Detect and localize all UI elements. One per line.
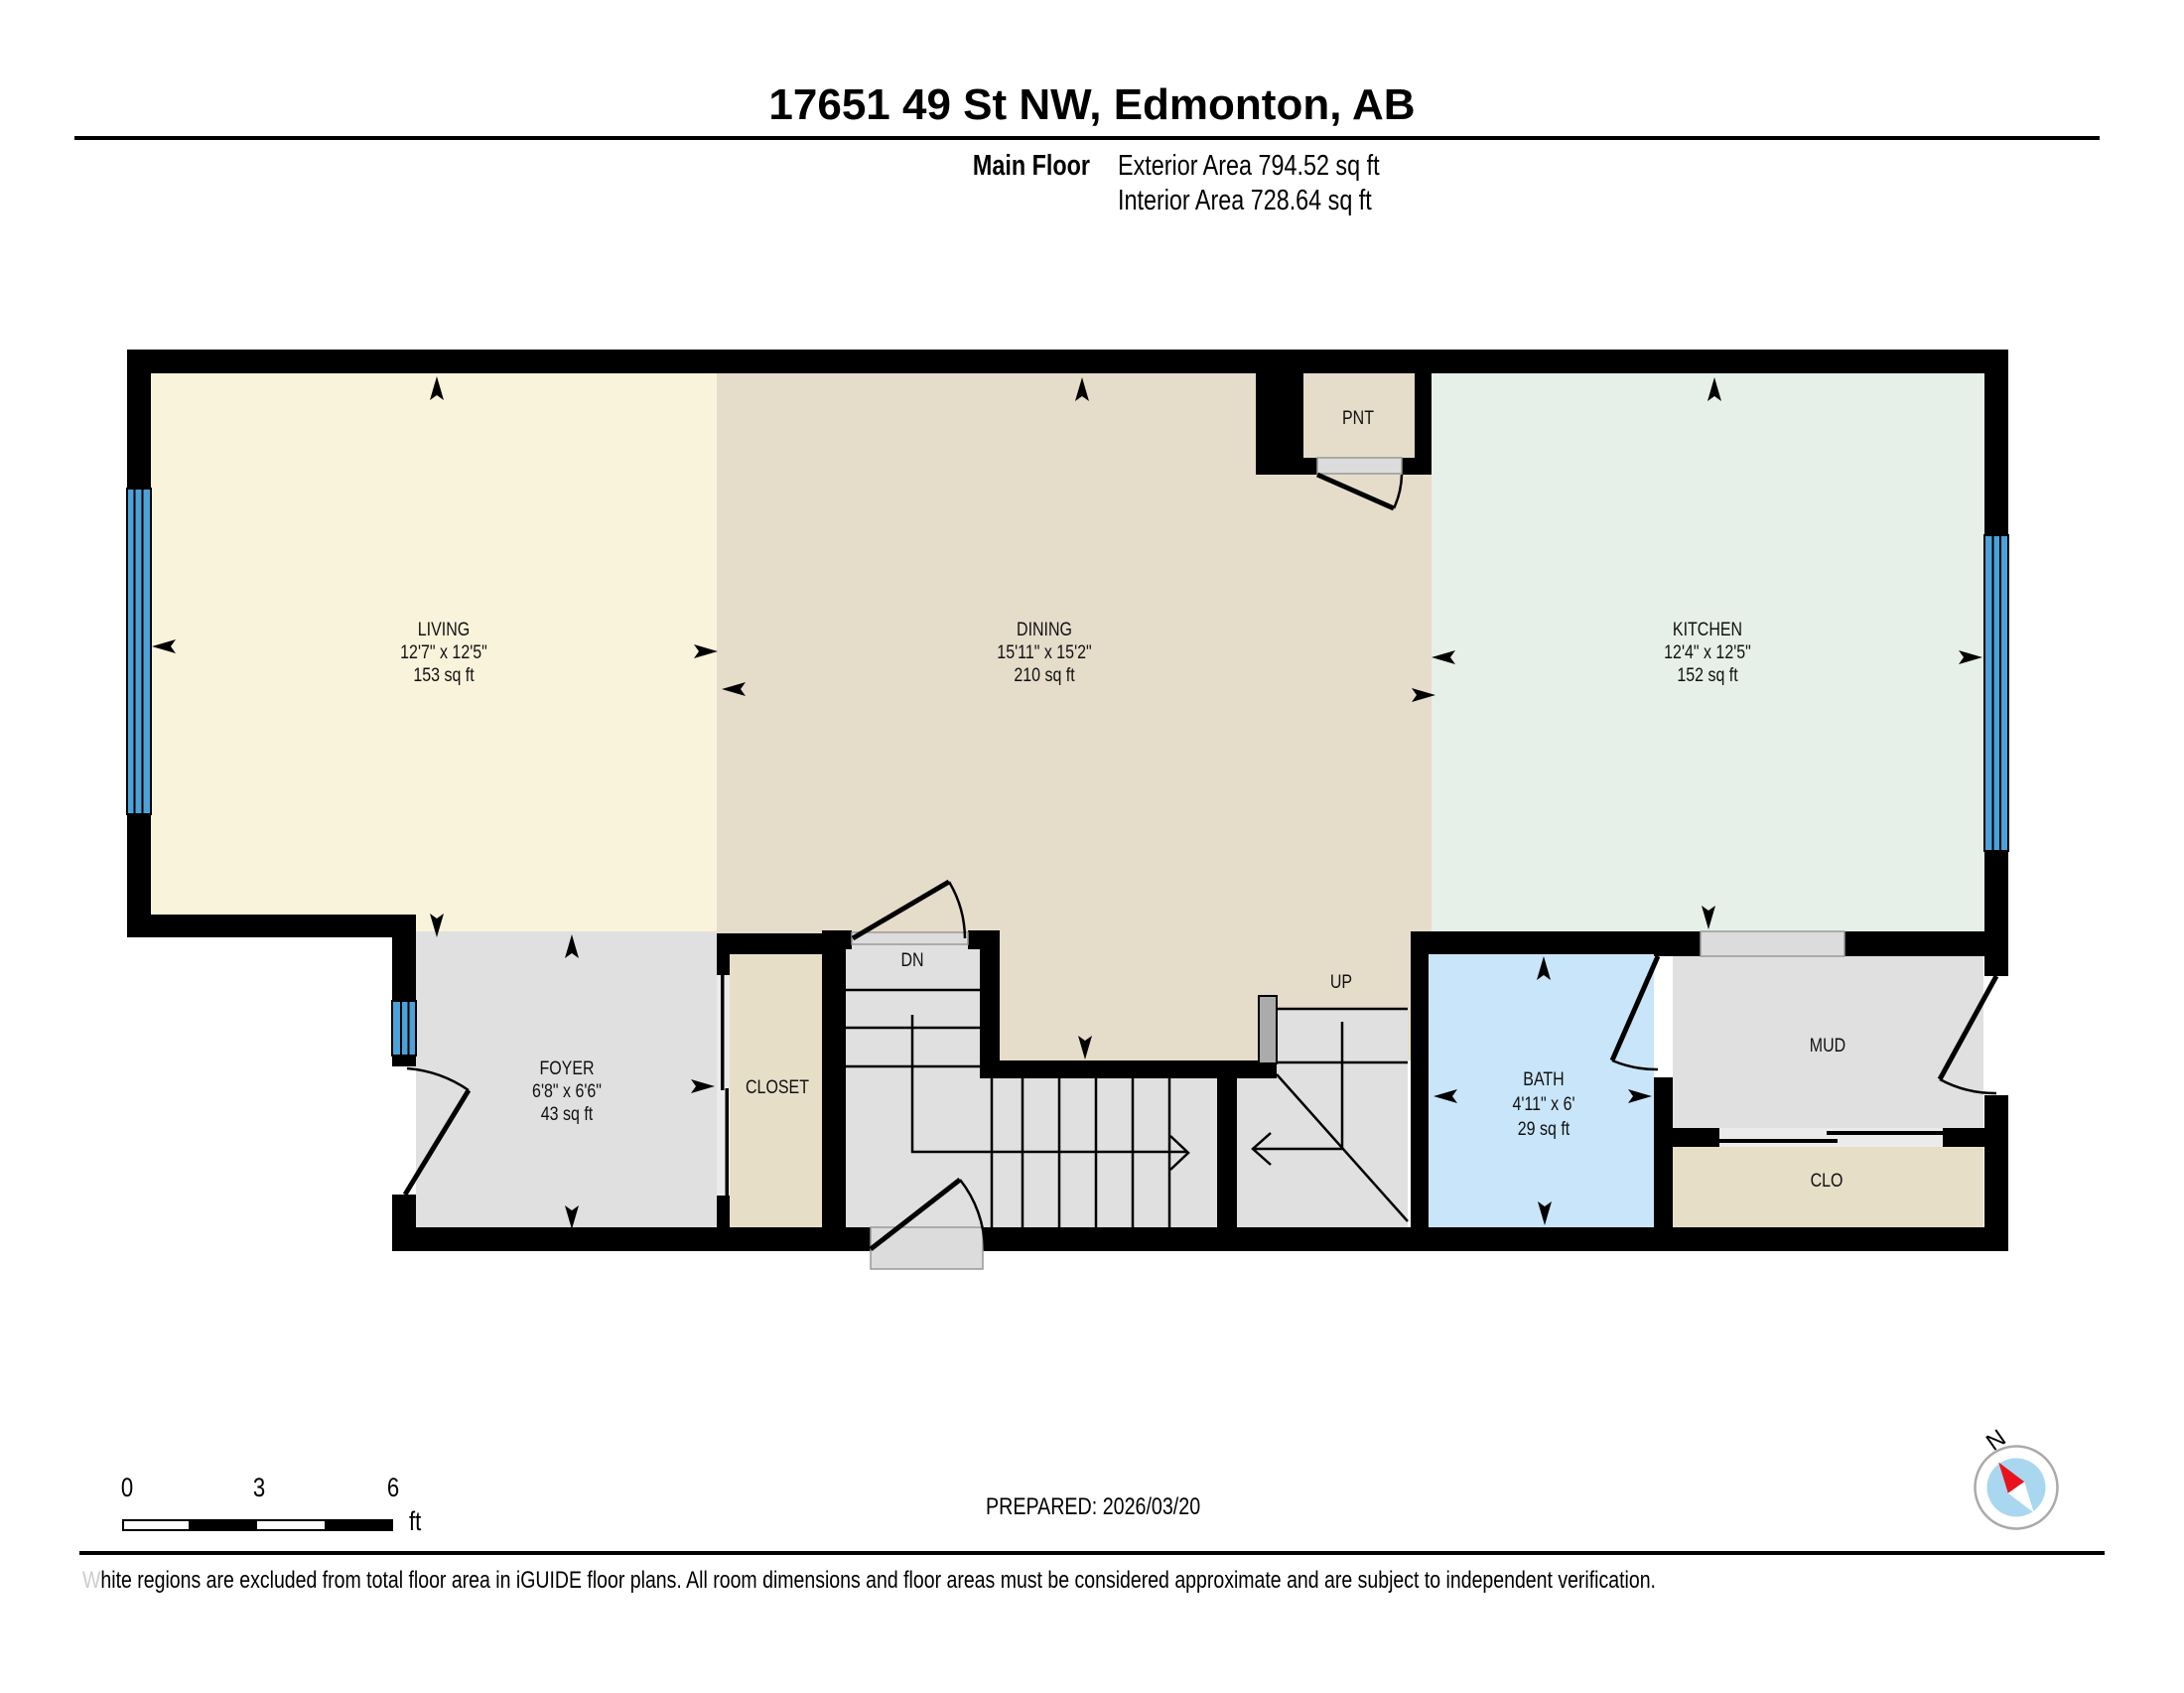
svg-text:ft: ft: [409, 1507, 421, 1537]
svg-text:17651 49 St NW, Edmonton, AB: 17651 49 St NW, Edmonton, AB: [768, 80, 1415, 129]
svg-text:CLOSET: CLOSET: [746, 1076, 809, 1098]
svg-text:29 sq ft: 29 sq ft: [1518, 1118, 1570, 1140]
svg-text:43 sq ft: 43 sq ft: [541, 1103, 593, 1125]
svg-text:DINING: DINING: [1017, 619, 1072, 640]
svg-text:PNT: PNT: [1342, 407, 1374, 429]
svg-text:White regions are excluded fro: White regions are excluded from total fl…: [82, 1566, 1656, 1593]
svg-text:12'4" x 12'5": 12'4" x 12'5": [1664, 641, 1751, 663]
svg-text:210 sq ft: 210 sq ft: [1014, 664, 1074, 686]
svg-text:12'7" x 12'5": 12'7" x 12'5": [400, 641, 487, 663]
svg-text:153 sq ft: 153 sq ft: [413, 664, 474, 686]
svg-text:4'11" x 6': 4'11" x 6': [1512, 1093, 1574, 1115]
svg-text:PREPARED: 2026/03/20: PREPARED: 2026/03/20: [986, 1492, 1200, 1519]
svg-text:Exterior Area 794.52 sq ft: Exterior Area 794.52 sq ft: [1118, 149, 1380, 182]
svg-text:6: 6: [387, 1474, 399, 1503]
svg-text:15'11" x 15'2": 15'11" x 15'2": [997, 641, 1091, 663]
svg-text:3: 3: [253, 1474, 265, 1503]
svg-text:0: 0: [121, 1474, 133, 1503]
svg-text:Interior Area 728.64 sq ft: Interior Area 728.64 sq ft: [1118, 184, 1372, 216]
svg-text:UP: UP: [1330, 971, 1352, 993]
svg-text:BATH: BATH: [1523, 1068, 1564, 1090]
svg-text:Main Floor: Main Floor: [973, 149, 1090, 182]
svg-text:FOYER: FOYER: [539, 1058, 594, 1079]
svg-text:CLO: CLO: [1811, 1170, 1843, 1192]
svg-text:LIVING: LIVING: [418, 619, 470, 640]
svg-text:152 sq ft: 152 sq ft: [1677, 664, 1737, 686]
svg-text:6'8" x 6'6": 6'8" x 6'6": [532, 1080, 602, 1102]
svg-text:MUD: MUD: [1810, 1035, 1846, 1057]
svg-text:DN: DN: [900, 949, 923, 971]
svg-text:KITCHEN: KITCHEN: [1673, 619, 1742, 640]
